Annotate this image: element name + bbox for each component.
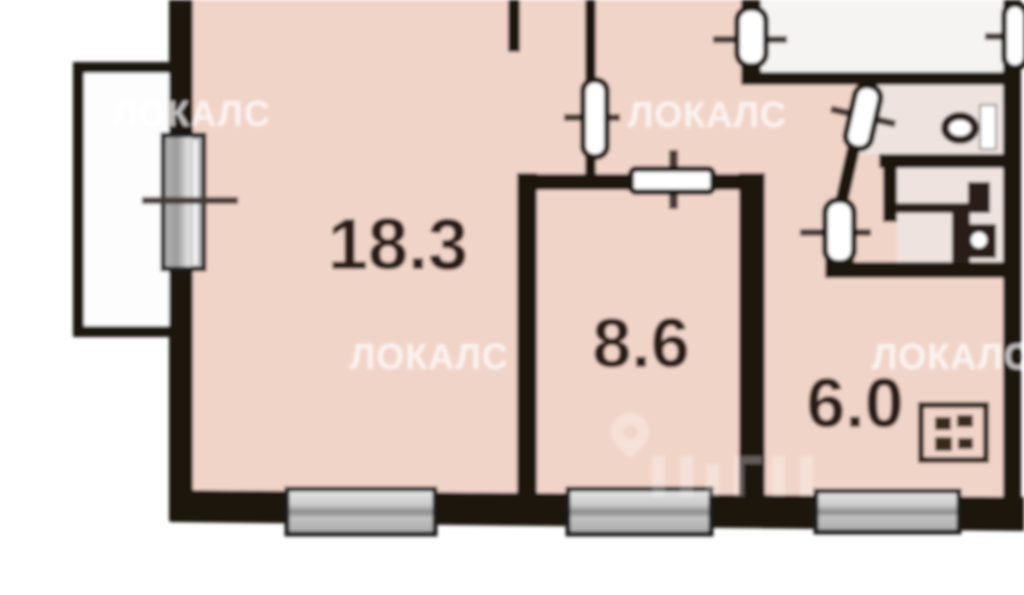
svg-text:ЛОКАЛС: ЛОКАЛС [628, 94, 787, 135]
svg-text:8.6: 8.6 [592, 304, 689, 382]
svg-text:ЛОКАЛС: ЛОКАЛС [112, 93, 271, 134]
svg-text:ЛОКАЛС: ЛОКАЛС [872, 336, 1024, 377]
svg-text:18.3: 18.3 [328, 205, 468, 285]
svg-text:ЛОКАЛС: ЛОКАЛС [350, 336, 509, 377]
